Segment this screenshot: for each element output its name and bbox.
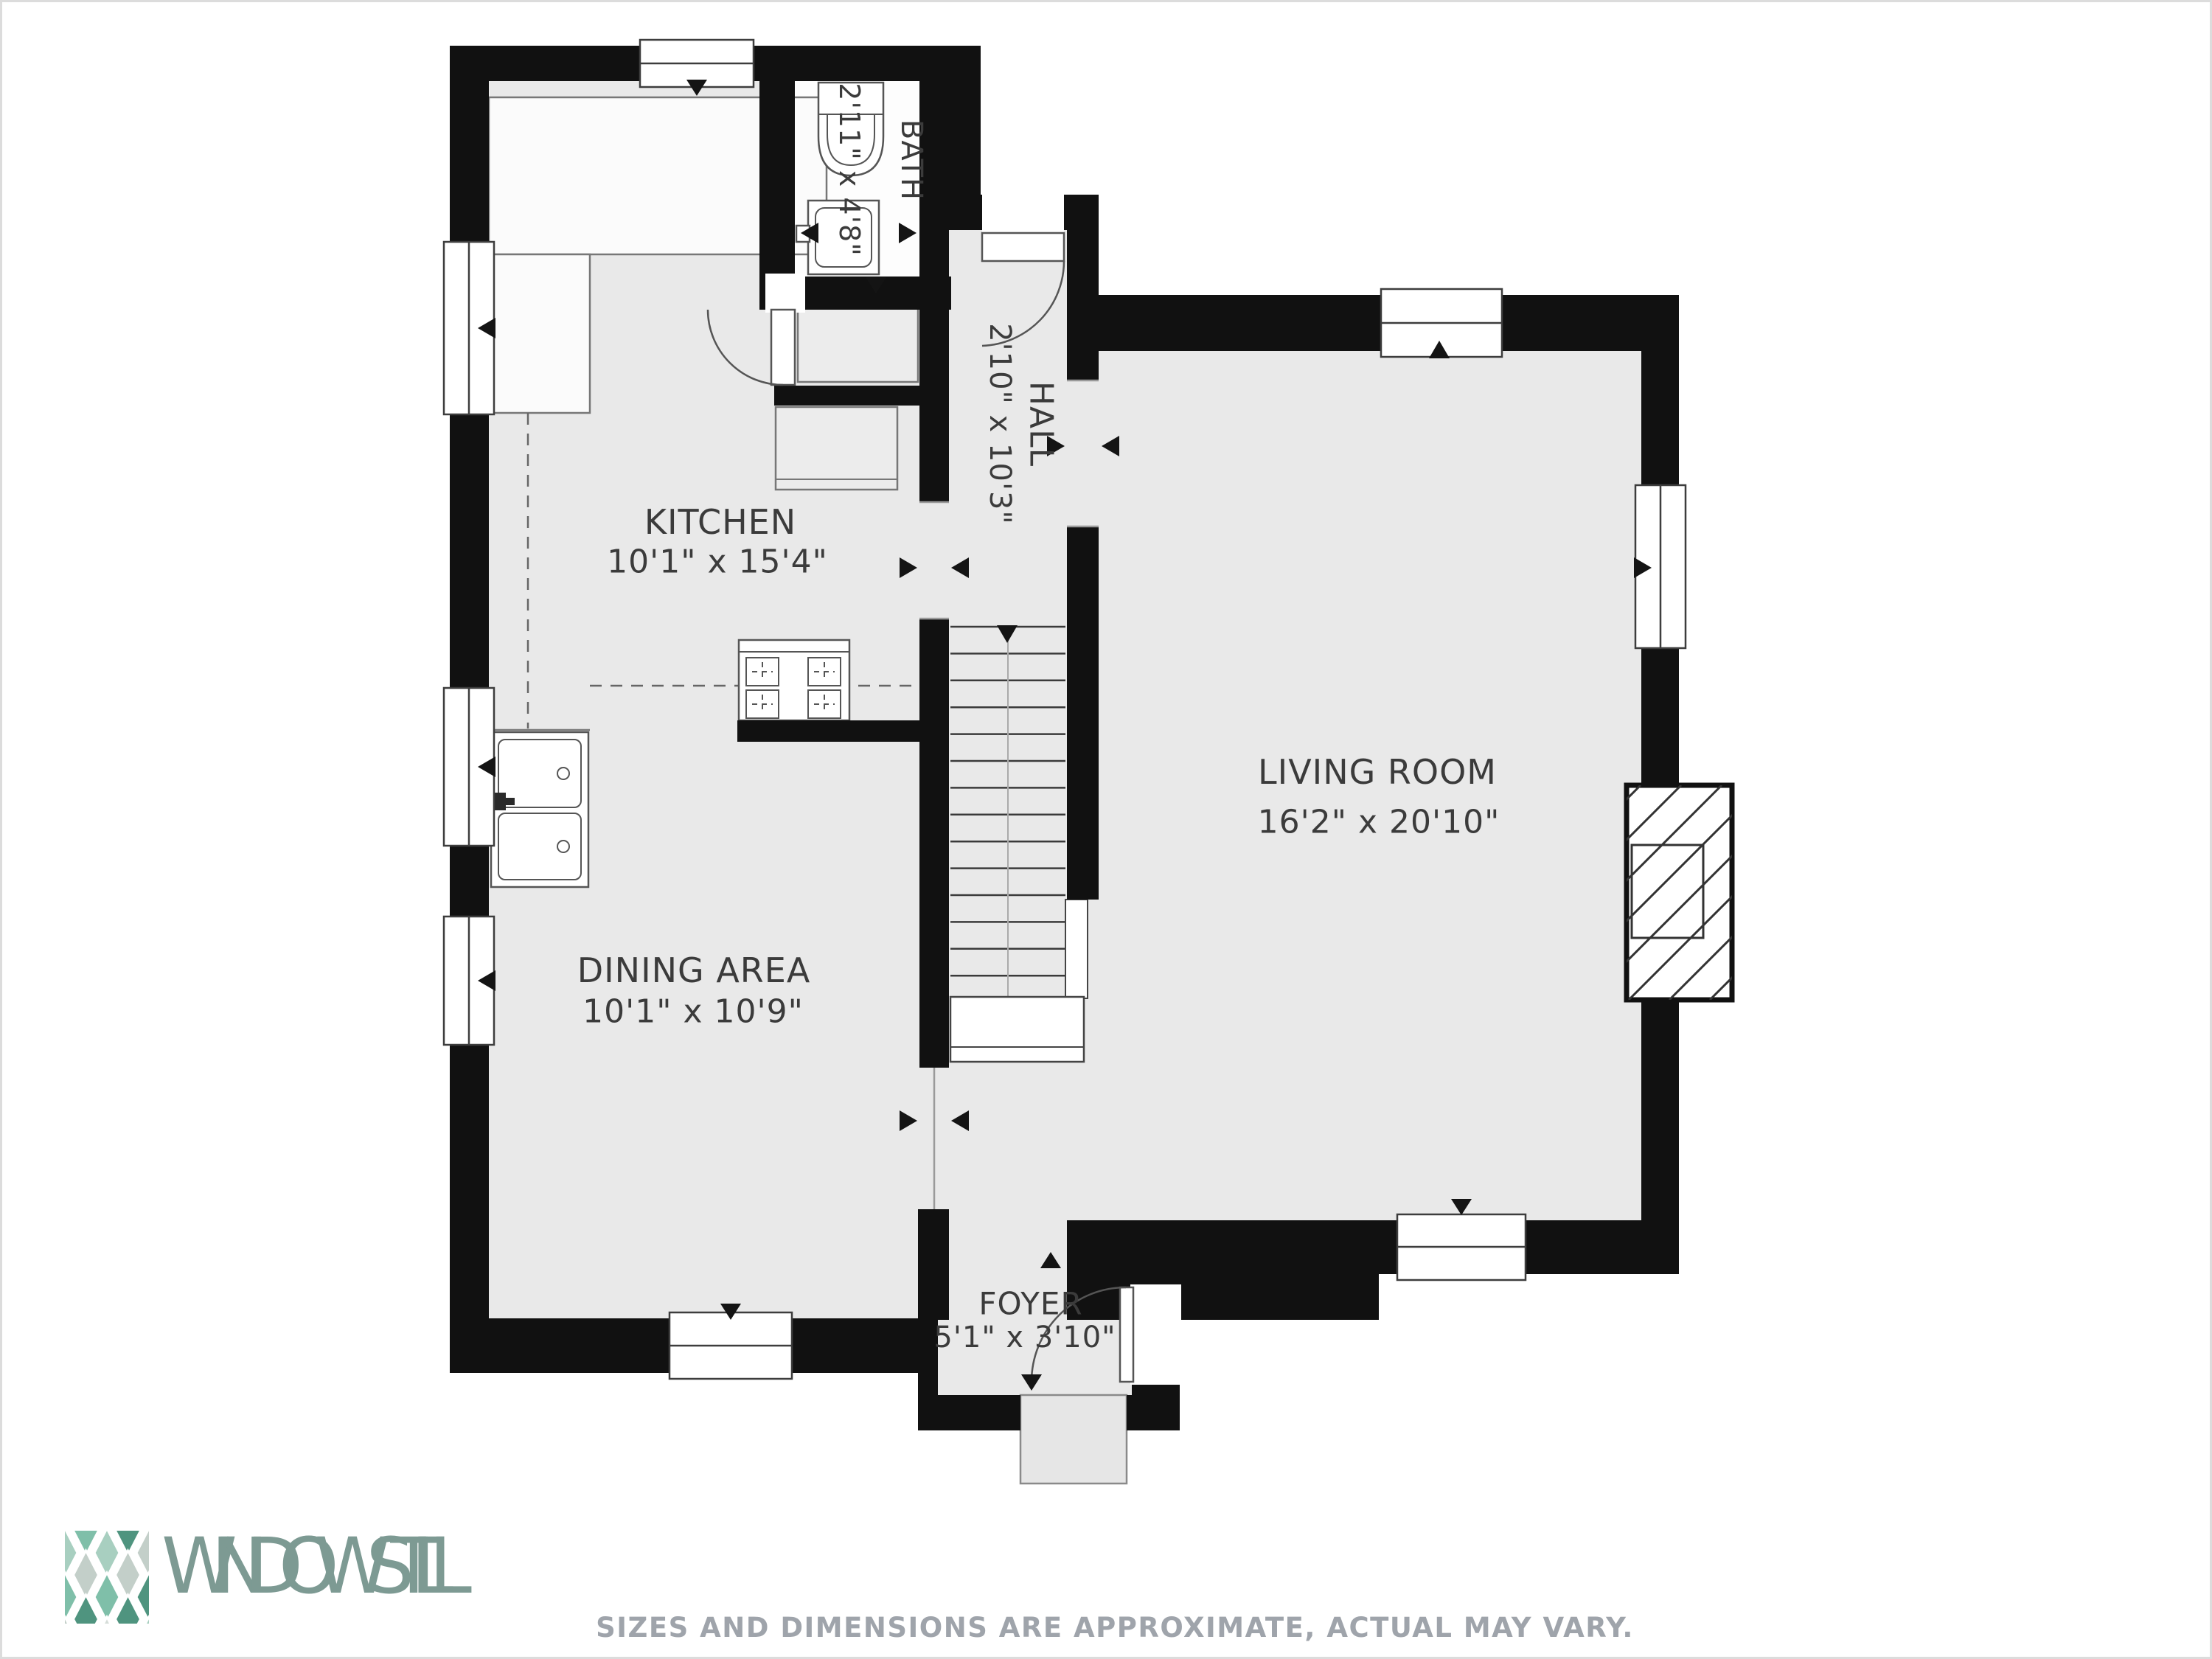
logo-diamond <box>94 1617 119 1659</box>
logo-diamond <box>116 1551 141 1599</box>
wall-stairs-left-lower <box>918 1209 949 1320</box>
floorplan-page: KITCHEN 10'1" x 15'4" BATH 2'11" x 4'8" … <box>0 0 2212 1659</box>
logo-diamond <box>74 1551 99 1599</box>
wall-hall-living-connector <box>1067 195 1099 380</box>
brand-name: WINDOWSTILL <box>161 1521 475 1611</box>
logo-diamond <box>52 1528 77 1577</box>
counter-side <box>489 254 590 413</box>
logo-diamond <box>116 1595 141 1644</box>
windowstill-logo-icon <box>52 1484 161 1659</box>
logo-diamond <box>116 1506 141 1555</box>
logo-diamond <box>136 1617 161 1659</box>
closet-lower <box>776 407 897 490</box>
logo-diamond <box>74 1639 99 1659</box>
wall-stairs-right <box>1067 527 1099 900</box>
logo-diamond <box>136 1573 161 1621</box>
bath-dims: 2'11" x 4'8" <box>833 83 866 256</box>
logo-diamond <box>94 1528 119 1577</box>
logo-diamond <box>74 1506 99 1555</box>
living-room-label: LIVING ROOM <box>1258 752 1497 792</box>
floor-plan: KITCHEN 10'1" x 15'4" BATH 2'11" x 4'8" … <box>0 0 2212 1659</box>
window-living-bottom <box>1397 1214 1526 1280</box>
foyer-dims: 5'1" x 3'10" <box>933 1321 1116 1354</box>
stair-landing <box>950 997 1084 1062</box>
logo-diamond <box>52 1484 77 1533</box>
hall-dims: 2'10" x 10'3" <box>983 323 1017 525</box>
bath-door-opening <box>765 274 805 313</box>
stair-half-wall <box>1065 900 1088 998</box>
foyer-label: FOYER <box>978 1286 1082 1322</box>
kitchen-label: KITCHEN <box>644 502 796 542</box>
logo-diamond <box>136 1528 161 1577</box>
footer: WINDOWSTILL SIZES AND DIMENSIONS ARE APP… <box>52 1484 1634 1659</box>
window-dining-bottom <box>669 1312 792 1379</box>
disclaimer-text: SIZES AND DIMENSIONS ARE APPROXIMATE, AC… <box>596 1612 1634 1644</box>
bath-label: BATH <box>894 119 928 201</box>
dining-area-dims: 10'1" x 10'9" <box>582 993 804 1031</box>
hall-label: HALL <box>1023 381 1060 467</box>
living-room-dims: 16'2" x 20'10" <box>1258 804 1500 841</box>
wall-stove-stub <box>737 720 949 742</box>
logo-diamond <box>52 1573 77 1621</box>
back-door-opening <box>982 192 1064 233</box>
wall-hall-left-upper <box>919 230 949 501</box>
logo-diamond <box>94 1484 119 1533</box>
closet-upper <box>798 304 918 382</box>
logo-diamond <box>94 1573 119 1621</box>
front-door-opening <box>1130 1284 1181 1385</box>
wall-closet-divider <box>774 386 919 406</box>
entry-stoop <box>1020 1395 1127 1484</box>
logo-diamond <box>116 1639 141 1659</box>
kitchen-dims: 10'1" x 15'4" <box>607 543 828 581</box>
logo-diamond <box>136 1484 161 1533</box>
dining-area-label: DINING AREA <box>577 950 811 990</box>
logo-diamond <box>74 1595 99 1644</box>
wall-living-bottom-lower <box>1067 1220 1379 1320</box>
stove-icon <box>739 640 849 720</box>
kitchen-sink-icon <box>479 732 588 887</box>
logo-diamond <box>52 1617 77 1659</box>
wall-stairs-left <box>919 619 949 1068</box>
wall-foyer-bottom-left <box>938 1395 1020 1430</box>
